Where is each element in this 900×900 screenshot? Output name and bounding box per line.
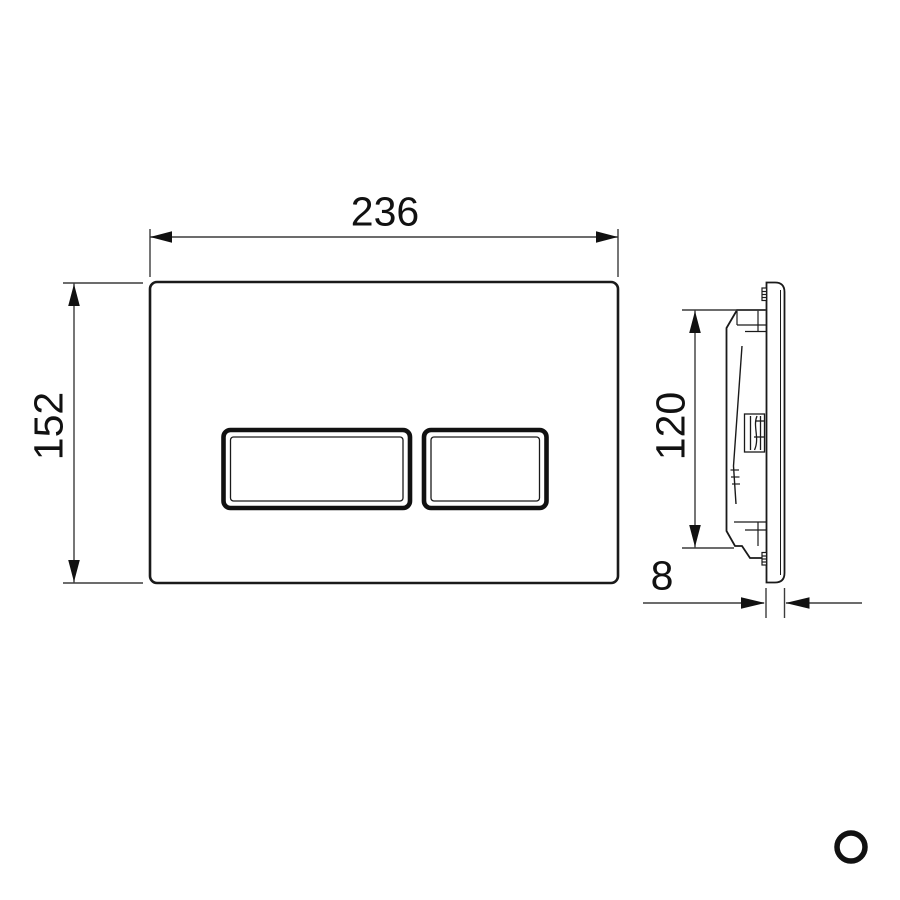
flush-button-small-bezel [424, 430, 547, 508]
dimension-height-label: 152 [29, 392, 70, 460]
flush-button-large [224, 430, 411, 508]
dimension-housing-height-label: 120 [651, 392, 692, 460]
arrowhead-down-icon [689, 525, 701, 547]
arrowhead-up-icon [68, 284, 80, 306]
arrowhead-left-icon [786, 597, 810, 609]
arrowhead-down-icon [68, 560, 80, 582]
clip-box [745, 414, 765, 452]
dimension-width-label: 236 [351, 192, 419, 233]
mechanism-lever-line [734, 346, 743, 504]
arrowhead-up-icon [689, 311, 701, 333]
dimension-height [63, 283, 143, 583]
dimension-thickness [643, 588, 862, 618]
side-view [727, 283, 785, 583]
circle-marker-icon [837, 833, 865, 861]
front-view [150, 282, 618, 583]
arrowhead-right-icon [741, 597, 765, 609]
technical-drawing [0, 0, 900, 900]
dimension-width [150, 229, 618, 277]
arrowhead-right-icon [596, 231, 618, 243]
drawing-canvas: 236 152 120 8 [0, 0, 900, 900]
flush-button-large-bezel [224, 430, 411, 508]
snap-clip-detail [745, 414, 765, 452]
flush-button-small [424, 430, 547, 508]
gasket-top [762, 288, 767, 301]
gasket-bottom [762, 553, 767, 566]
plate-profile [767, 283, 785, 583]
arrowhead-left-icon [150, 231, 172, 243]
dimension-thickness-label: 8 [651, 556, 674, 597]
